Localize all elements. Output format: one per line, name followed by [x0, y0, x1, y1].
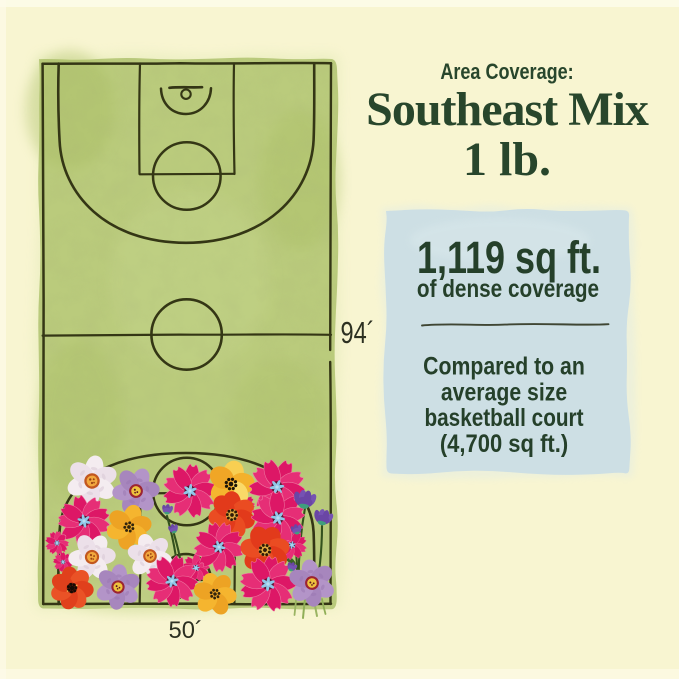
svg-text:(4,700 sq ft.): (4,700 sq ft.)	[440, 430, 568, 458]
svg-text:Southeast Mix: Southeast Mix	[366, 83, 649, 136]
svg-text:average size: average size	[441, 378, 567, 406]
svg-text:94´: 94´	[341, 315, 375, 350]
svg-text:50´: 50´	[169, 617, 203, 644]
svg-text:1 lb.: 1 lb.	[463, 133, 551, 186]
svg-text:Compared to an: Compared to an	[423, 352, 585, 380]
svg-text:of dense coverage: of dense coverage	[417, 274, 599, 302]
svg-text:basketball court: basketball court	[424, 403, 583, 431]
svg-text:Area Coverage:: Area Coverage:	[440, 60, 573, 84]
